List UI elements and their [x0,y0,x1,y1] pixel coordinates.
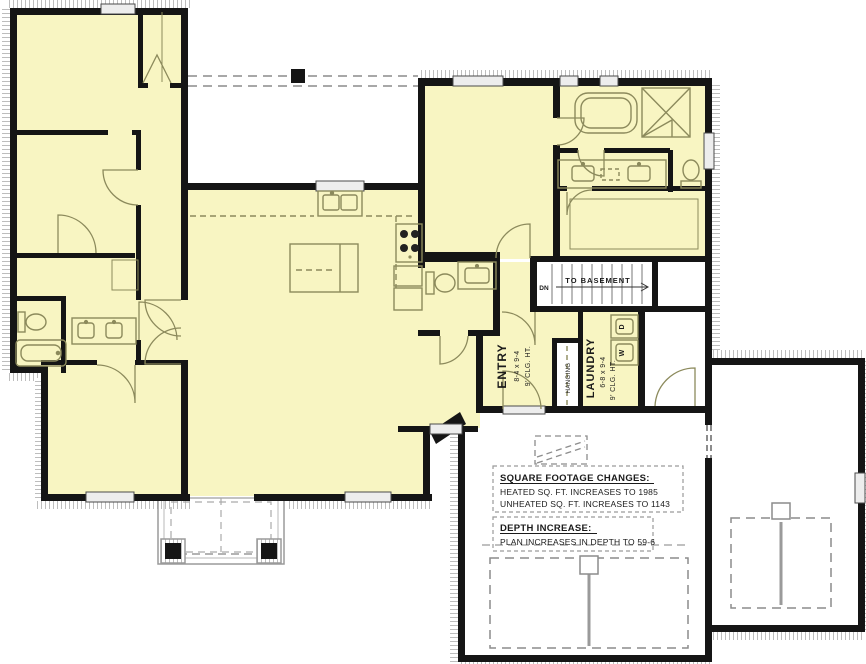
entry-label: ENTRY [495,343,509,388]
depth-line: PLAN INCREASES IN DEPTH TO 59-6 [500,537,655,547]
rear-porch [188,69,418,86]
square-footage-note: SQUARE FOOTAGE CHANGES: HEATED SQ. FT. I… [500,473,670,509]
depth-increase-note: DEPTH INCREASE: PLAN INCREASES IN DEPTH … [500,523,655,547]
entry-ceiling: 9' CLG. HT. [525,346,532,386]
window [86,492,134,502]
stairs-direction-label: TO BASEMENT [565,276,630,285]
porch-post [165,543,181,559]
laundry-ceiling: 9' CLG. HT. [610,360,617,400]
attic-access-symbol [535,436,587,464]
sqft-unheated-line: UNHEATED SQ. FT. INCREASES TO 1143 [500,499,670,509]
laundry-dims: 6-8 x 9-4 [600,356,607,387]
window [345,492,391,502]
porch-post [291,69,305,83]
sqft-heading: SQUARE FOOTAGE CHANGES: [500,473,650,484]
window [316,181,364,191]
floor-plan-drawing: ENTRY 8-4 x 9-4 9' CLG. HT. LAUNDRY 6-8 … [0,0,866,664]
washer-label: W [619,349,626,356]
window [600,76,618,86]
window [430,424,462,434]
stairs-dn-label: DN [539,285,549,292]
depth-heading: DEPTH INCREASE: [500,523,592,534]
floor-plan-page: ENTRY 8-4 x 9-4 9' CLG. HT. LAUNDRY 6-8 … [0,0,866,664]
laundry-label: LAUNDRY [585,338,597,398]
window [560,76,578,86]
window [101,4,135,14]
hanging-label: HANGING [566,363,572,394]
sqft-heated-line: HEATED SQ. FT. INCREASES TO 1985 [500,487,658,497]
window [855,473,865,503]
entry-dims: 8-4 x 9-4 [514,350,521,381]
window [453,76,503,86]
porch-post [261,543,277,559]
window [704,133,714,169]
dryer-label: D [619,324,626,329]
front-door-sill [503,406,545,414]
